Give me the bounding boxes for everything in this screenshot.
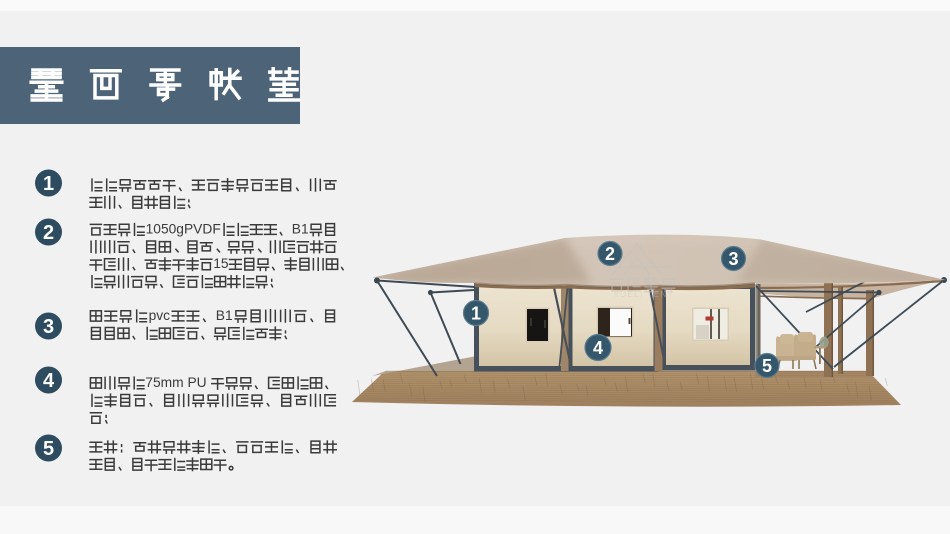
svg-text:1: 1 (471, 304, 481, 324)
svg-text:2: 2 (43, 222, 54, 244)
svg-text:5: 5 (762, 356, 772, 376)
svg-text:XUELI TENT: XUELI TENT (613, 289, 674, 299)
svg-text:75mm PU: 75mm PU (145, 375, 206, 390)
svg-text:3: 3 (43, 316, 54, 338)
svg-text:1050gPVDF: 1050gPVDF (146, 221, 221, 236)
svg-text:4: 4 (593, 338, 603, 358)
svg-text:B1: B1 (292, 221, 309, 236)
svg-text:B1: B1 (216, 308, 233, 323)
svg-text:3: 3 (728, 249, 738, 269)
svg-text:4: 4 (43, 370, 55, 392)
svg-text:15: 15 (213, 256, 229, 271)
svg-text:1: 1 (43, 173, 54, 195)
svg-text:2: 2 (605, 244, 615, 264)
svg-text:pvc: pvc (149, 308, 171, 323)
svg-text:5: 5 (43, 438, 54, 460)
